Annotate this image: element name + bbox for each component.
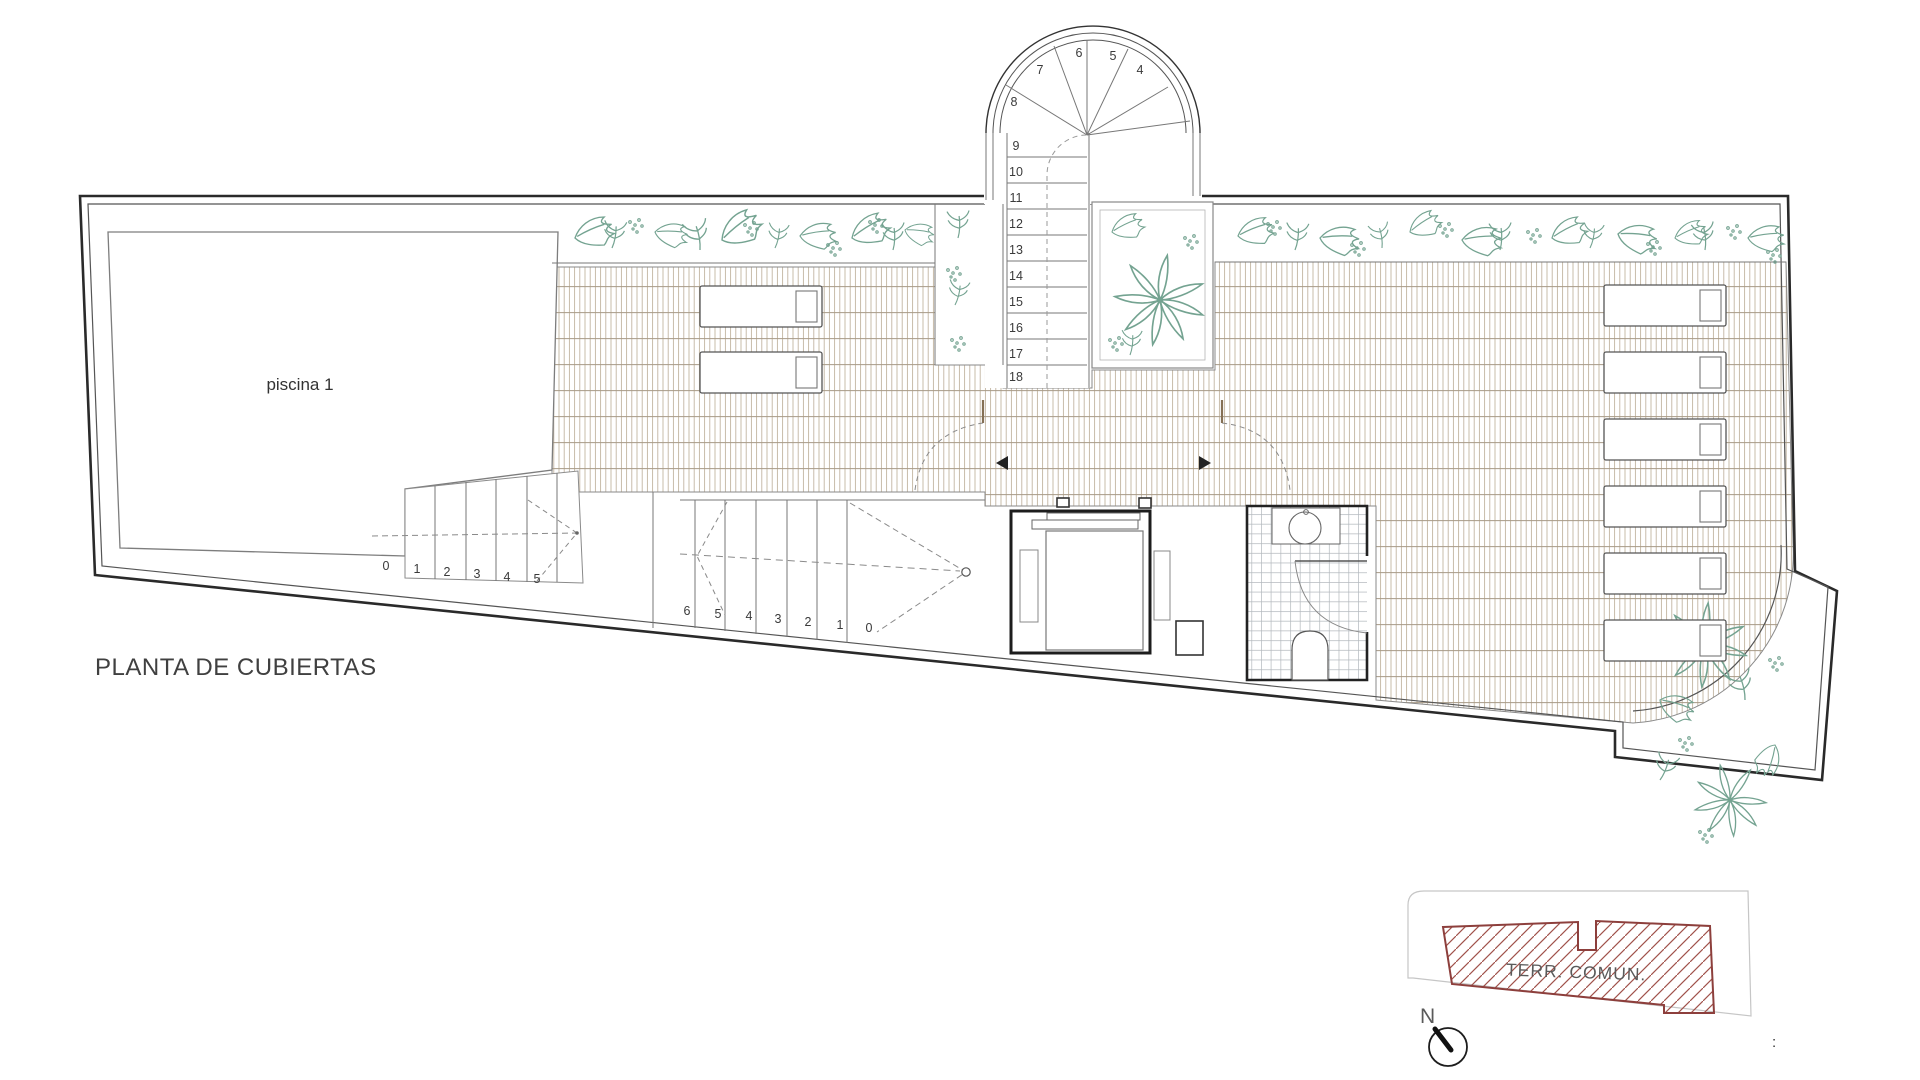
plant-icon — [1527, 229, 1542, 244]
plan-title: PLANTA DE CUBIERTAS — [95, 654, 377, 681]
plant-icon — [1650, 750, 1680, 783]
stair-number: 5 — [1110, 49, 1117, 63]
plant-icon — [847, 210, 893, 249]
plant-icon — [1548, 215, 1589, 249]
stair-number: 6 — [684, 604, 691, 618]
plant-icon — [652, 219, 690, 250]
stair-number: 0 — [866, 621, 873, 635]
stair-number: 11 — [1010, 191, 1023, 205]
roof-plan-page: piscina 1 — [0, 0, 1920, 1080]
stair-number: 14 — [1009, 269, 1023, 283]
sun-lounger — [700, 352, 822, 393]
stair-number: 10 — [1009, 165, 1023, 179]
plant-icon — [799, 221, 837, 250]
plant-icon — [947, 267, 962, 282]
main-stair — [653, 492, 985, 643]
plant-icon — [1691, 222, 1716, 252]
plant-icon — [1747, 223, 1786, 252]
plant-icon — [629, 219, 644, 234]
sun-lounger — [700, 286, 822, 327]
stair-number: 5 — [534, 572, 541, 586]
stair-number: 3 — [775, 612, 782, 626]
plant-icon — [951, 337, 966, 352]
plant-icon — [902, 219, 937, 249]
plant-icon — [945, 278, 970, 307]
plant-icon — [1699, 829, 1714, 844]
stair-number: 15 — [1009, 295, 1023, 309]
stair-number: 4 — [504, 570, 511, 584]
north-arrow: N — [1420, 1005, 1467, 1066]
plant-icon — [1769, 657, 1784, 672]
stair-number: 1 — [414, 562, 421, 576]
plant-icon — [1580, 222, 1604, 250]
plant-icon — [572, 215, 616, 250]
plant-icon — [1489, 223, 1511, 251]
sun-lounger — [1604, 285, 1726, 326]
stair-number: 13 — [1009, 243, 1023, 257]
plant-icon — [827, 242, 842, 257]
stair-number: 0 — [383, 559, 390, 573]
north-label: N — [1420, 1005, 1435, 1028]
stair-number: 12 — [1009, 217, 1023, 231]
stair-number: 2 — [805, 615, 812, 629]
bathroom — [1247, 506, 1367, 680]
plant-icon — [1284, 222, 1309, 252]
stair-number: 4 — [1137, 63, 1144, 77]
plant-icon — [1460, 224, 1503, 257]
sun-lounger — [1604, 486, 1726, 527]
plant-icon — [869, 219, 884, 234]
plant-icon — [1679, 737, 1694, 752]
plant-icon — [765, 222, 789, 250]
plant-icon — [1439, 223, 1454, 238]
plant-icon — [1647, 241, 1662, 256]
plant-icon — [1368, 222, 1392, 250]
pool-label: piscina 1 — [266, 375, 333, 394]
plant-icon — [1614, 219, 1660, 258]
floor-plan-svg: piscina 1 — [0, 0, 1920, 1080]
stair-number: 2 — [444, 565, 451, 579]
stair-number: 16 — [1009, 321, 1023, 335]
toilet — [1292, 631, 1328, 680]
stair-number: 1 — [837, 618, 844, 632]
elevator-shaft — [1011, 498, 1203, 655]
sun-lounger — [1604, 419, 1726, 460]
plant-icon — [1267, 221, 1282, 236]
plant-icon — [1727, 225, 1742, 240]
washbasin — [1289, 512, 1321, 544]
stair-number: 5 — [715, 607, 722, 621]
stair-number: 4 — [746, 609, 753, 623]
plant-icon — [947, 211, 969, 239]
stair-number: 9 — [1013, 139, 1020, 153]
plant-icon — [1673, 219, 1710, 248]
stair-number: 8 — [1011, 95, 1018, 109]
stair-number: 17 — [1009, 347, 1023, 361]
stair-number: 6 — [1076, 46, 1083, 60]
plant-icon — [1405, 208, 1444, 241]
plant-icon — [882, 223, 904, 251]
stray-mark: : — [1772, 1034, 1776, 1051]
sun-lounger — [1604, 553, 1726, 594]
sun-lounger — [1604, 352, 1726, 393]
stair-number: 3 — [474, 567, 481, 581]
sun-lounger — [1604, 620, 1726, 661]
plant-icon — [682, 218, 712, 252]
stair-number: 18 — [1009, 370, 1023, 384]
stair-number: 7 — [1037, 63, 1044, 77]
keyplan: TERR. COMUN. N : — [1408, 891, 1776, 1066]
